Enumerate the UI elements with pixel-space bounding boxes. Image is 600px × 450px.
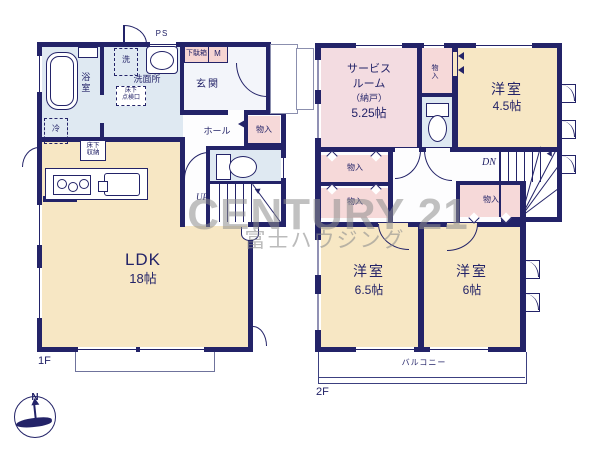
door-arc-kitchen-rear — [22, 147, 39, 167]
window — [37, 268, 42, 318]
window — [315, 294, 321, 330]
casement-arc — [526, 261, 539, 277]
storage1f-label: 物入 — [250, 125, 278, 134]
wall — [418, 224, 424, 347]
casement-window — [526, 293, 540, 312]
watermark-company: 富士ハウジング — [235, 224, 415, 254]
storage2f-top-label: 物入 — [430, 56, 438, 88]
porch-step-outer — [270, 44, 298, 114]
window — [315, 60, 321, 90]
ldk-size-label: 18帖 — [108, 272, 178, 287]
balcony-label: バルコニー — [389, 358, 459, 367]
washbasin-bowl — [150, 51, 174, 70]
door-leaf-washroom — [123, 25, 125, 44]
terrace-outline — [75, 352, 215, 372]
casement-window — [562, 120, 576, 139]
hall-entrance-opening — [228, 110, 244, 115]
toilet2f-bowl — [428, 115, 447, 142]
service-room-size: 5.25帖 — [334, 107, 404, 121]
shoe-box-label: 下駄箱 — [184, 50, 209, 58]
service-room-label-2: ルーム — [334, 78, 404, 91]
window — [37, 56, 42, 92]
dn-label: DN — [476, 157, 502, 169]
fridge-label: 冷 — [44, 124, 68, 133]
underfloor-hatch-label: 床下点検口 — [116, 88, 146, 102]
western45-door-marker — [458, 52, 464, 60]
casement-window — [562, 155, 576, 174]
meter-label: M — [208, 49, 227, 58]
bathtub-inner — [50, 56, 74, 106]
casement-arc — [562, 121, 575, 137]
window — [37, 205, 42, 245]
casement-window — [526, 260, 540, 279]
western45-floor — [458, 48, 557, 147]
washing-machine-label: 洗 — [114, 55, 138, 64]
wall — [244, 112, 248, 147]
window — [424, 43, 444, 48]
washroom-label: 洗面所 — [122, 74, 172, 84]
storage2f-left-upper-label: 物入 — [340, 163, 370, 172]
door-arc-ldk-side — [253, 326, 267, 346]
hall-label: ホール — [196, 126, 238, 136]
underfloor-storage-label: 床下収納 — [80, 142, 106, 157]
wall — [244, 143, 281, 147]
western45-size: 4.5帖 — [477, 100, 537, 114]
burner — [79, 179, 89, 189]
window — [356, 43, 402, 48]
wall — [420, 93, 452, 97]
western45-door-marker — [458, 66, 464, 74]
washbasin — [146, 46, 178, 74]
entrance-label: 玄関 — [188, 79, 228, 91]
toilet1f-bowl — [229, 156, 257, 178]
door-arc-washroom — [124, 25, 147, 44]
wall — [100, 44, 104, 140]
service-room-label-3: （納戸） — [334, 93, 404, 103]
kitchen-counter — [45, 168, 148, 200]
bath-counter — [78, 47, 98, 58]
burner — [57, 179, 67, 189]
bathtub — [46, 52, 78, 110]
floor-plan-canvas: 洗 床下点検口 冷 床下収納 浴室 洗面所 PS 下駄箱 M 玄関 ホール 物入… — [0, 0, 600, 450]
window — [476, 43, 532, 48]
compass-needle-head — [31, 398, 40, 406]
kitchen-sink — [104, 173, 140, 196]
casement-arc — [562, 156, 575, 172]
western6-size: 6帖 — [442, 284, 502, 298]
compass: N — [14, 396, 56, 438]
floor1-label: 1F — [38, 355, 62, 368]
window — [315, 104, 321, 138]
window — [281, 158, 286, 178]
floor2-label: 2F — [316, 386, 340, 399]
bath-label: 浴室 — [80, 66, 90, 100]
wall — [520, 222, 526, 352]
storage1f-door-marker — [238, 120, 245, 128]
stove — [53, 175, 91, 195]
wall — [417, 48, 422, 147]
balcony-outline — [318, 352, 527, 384]
bath-door-gap — [100, 95, 104, 123]
door-gap — [453, 52, 457, 76]
balcony-rail-line — [318, 377, 525, 378]
western6-label: 洋室 — [442, 263, 502, 279]
western65-label: 洋室 — [339, 263, 399, 279]
ps-label: PS — [150, 29, 174, 38]
burner — [68, 182, 78, 192]
ldk-label: LDK — [108, 250, 178, 270]
service-room-label-1: サービス — [334, 63, 404, 76]
casement-arc — [562, 85, 575, 101]
western65-size: 6.5帖 — [339, 284, 399, 298]
porch-step-inner — [296, 48, 314, 110]
casement-window — [562, 84, 576, 103]
casement-arc — [526, 294, 539, 310]
kitchen-faucet — [98, 181, 108, 192]
western45-label: 洋室 — [477, 81, 537, 97]
